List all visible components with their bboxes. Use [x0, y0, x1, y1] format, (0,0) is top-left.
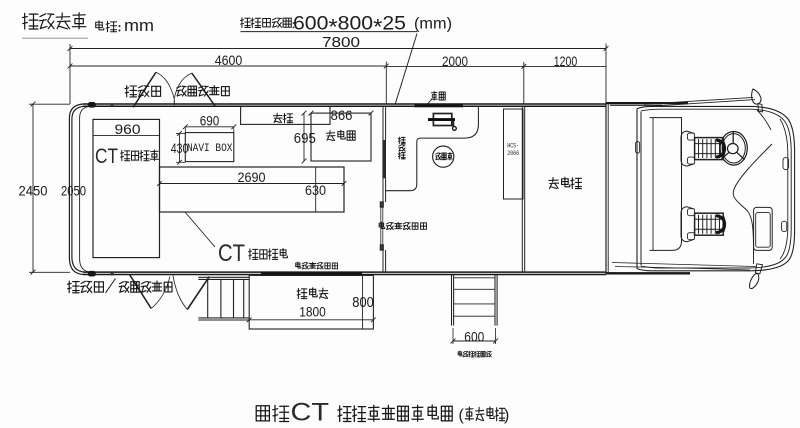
- svg-text:(: (: [459, 407, 465, 424]
- svg-text:1800: 1800: [299, 305, 326, 321]
- svg-text:(mm): (mm): [414, 16, 452, 33]
- svg-text:800: 800: [352, 295, 374, 311]
- svg-text:CT: CT: [291, 399, 330, 427]
- svg-text:NAVI BOX: NAVI BOX: [187, 143, 233, 155]
- svg-text:CT: CT: [95, 145, 118, 168]
- svg-text:2690: 2690: [238, 169, 266, 185]
- svg-text:mm: mm: [124, 17, 154, 35]
- svg-text:2050: 2050: [61, 183, 86, 199]
- svg-text:2450: 2450: [19, 183, 48, 199]
- svg-text:7800: 7800: [322, 34, 360, 51]
- svg-text:695: 695: [294, 131, 316, 147]
- svg-text:600: 600: [464, 329, 484, 345]
- svg-text:4600: 4600: [215, 53, 243, 69]
- svg-text:CT: CT: [218, 240, 245, 267]
- svg-text:): ): [504, 407, 509, 424]
- svg-text:690: 690: [200, 114, 220, 129]
- svg-text:2000: 2000: [442, 54, 468, 70]
- svg-text:2066: 2066: [507, 150, 519, 158]
- svg-text:630: 630: [305, 182, 326, 198]
- svg-text:1200: 1200: [554, 54, 578, 70]
- svg-text:866: 866: [331, 107, 353, 123]
- svg-text:430: 430: [171, 141, 189, 156]
